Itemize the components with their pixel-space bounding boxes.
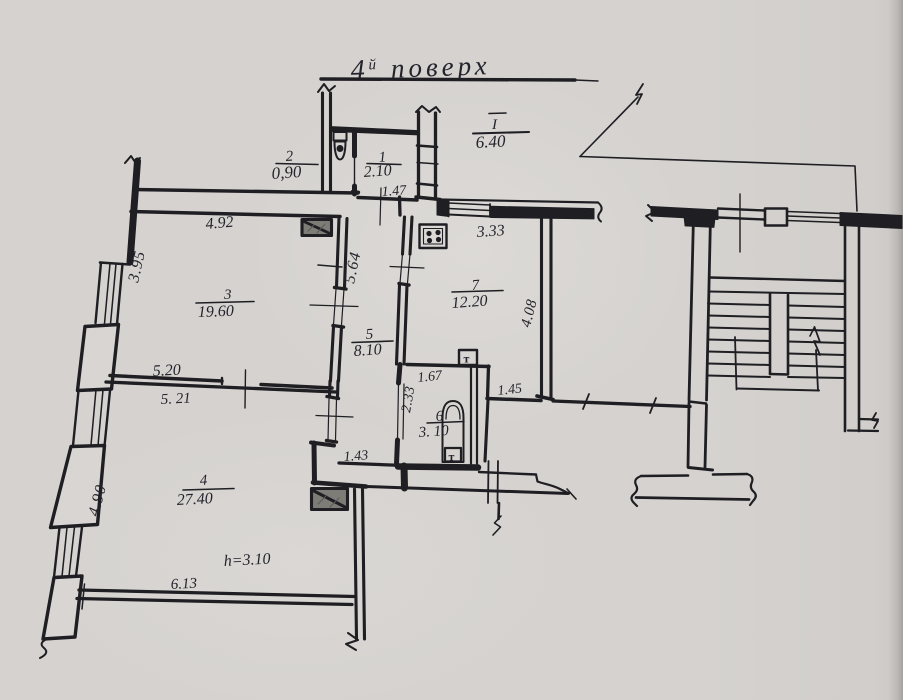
svg-text:19.60: 19.60 xyxy=(198,303,235,321)
svg-text:h=3.10: h=3.10 xyxy=(223,551,271,570)
svg-text:5.20: 5.20 xyxy=(152,362,181,380)
svg-text:4.92: 4.92 xyxy=(205,214,234,233)
svg-text:т: т xyxy=(449,450,455,464)
svg-text:3.33: 3.33 xyxy=(475,222,505,241)
svg-text:27.40: 27.40 xyxy=(176,490,213,509)
svg-text:5. 21: 5. 21 xyxy=(160,390,191,408)
svg-text:8.10: 8.10 xyxy=(353,341,382,360)
svg-text:0,90: 0,90 xyxy=(271,162,303,183)
svg-text:1.47: 1.47 xyxy=(381,183,407,200)
svg-text:3. 10: 3. 10 xyxy=(417,423,450,441)
svg-text:12.20: 12.20 xyxy=(451,293,488,312)
svg-text:2.10: 2.10 xyxy=(363,162,392,181)
svg-text:1.45: 1.45 xyxy=(497,381,523,398)
svg-text:1.67: 1.67 xyxy=(417,368,444,386)
svg-text:6.40: 6.40 xyxy=(475,131,506,152)
svg-text:т: т xyxy=(464,352,470,366)
svg-text:6.13: 6.13 xyxy=(170,576,197,593)
svg-text:3: 3 xyxy=(223,287,232,303)
svg-text:4: 4 xyxy=(199,473,208,489)
svg-text:I: I xyxy=(491,117,498,133)
